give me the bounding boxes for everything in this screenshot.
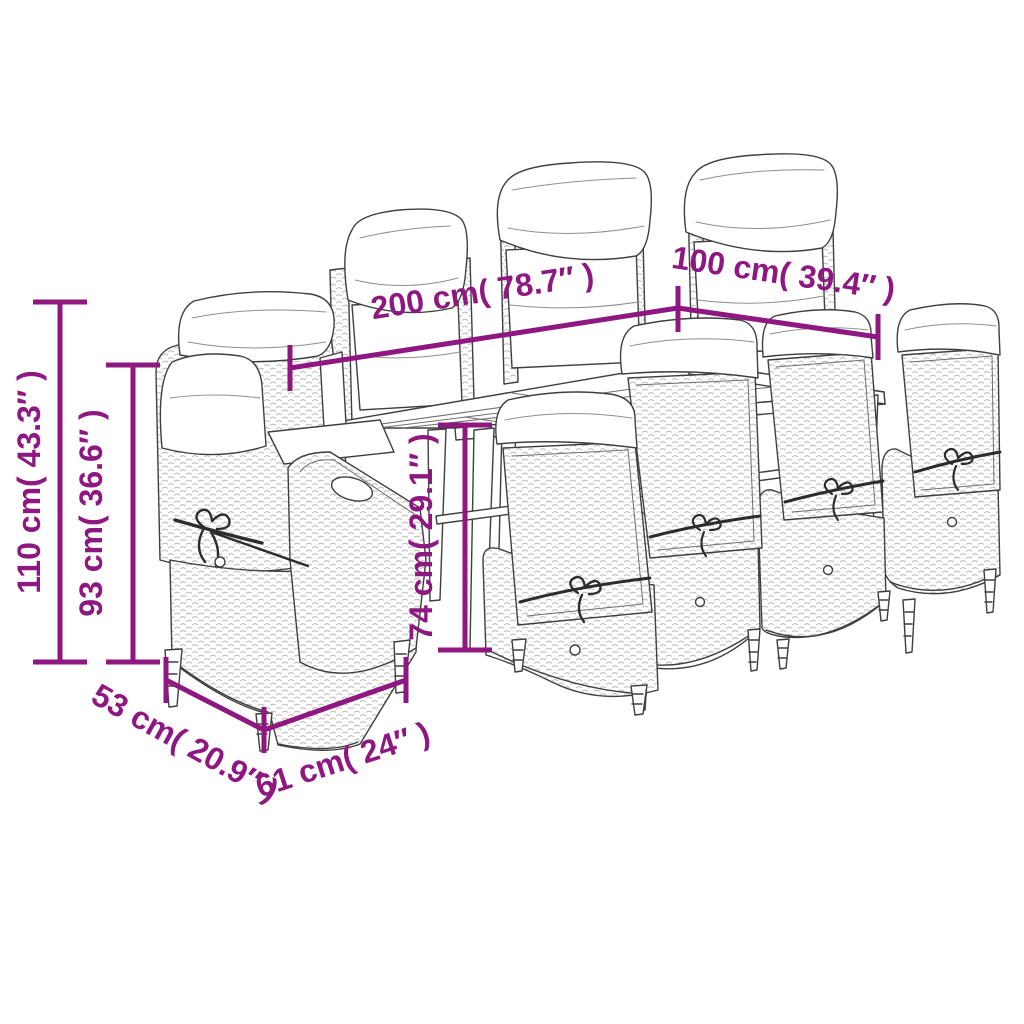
dim-chair-total-height-label: 110 cm( 43.3″ ) <box>11 370 47 593</box>
product-dimension-diagram: 200 cm( 78.7″ ) 100 cm( 39.4″ ) 110 cm( … <box>0 0 1024 1024</box>
dim-chair-back-height-label: 93 cm( 36.6″ ) <box>73 409 109 616</box>
dim-table-height-label: 74 cm( 29.1″ ) <box>403 433 439 640</box>
diagram-canvas: 200 cm( 78.7″ ) 100 cm( 39.4″ ) 110 cm( … <box>0 0 1024 1024</box>
chair-headrest-cushion <box>179 292 335 362</box>
chair-back-cushion <box>160 354 266 455</box>
